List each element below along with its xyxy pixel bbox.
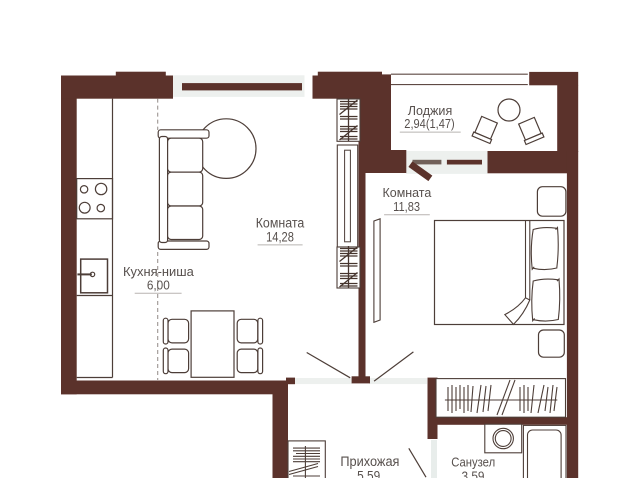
- svg-text:2,94(1,47): 2,94(1,47): [404, 116, 454, 131]
- svg-text:14,28: 14,28: [266, 229, 294, 244]
- svg-text:5,59: 5,59: [357, 469, 380, 478]
- svg-text:3,59: 3,59: [462, 469, 485, 478]
- svg-text:Комната: Комната: [383, 185, 433, 200]
- svg-text:Комната: Комната: [256, 215, 305, 230]
- svg-text:Прихожая: Прихожая: [340, 454, 399, 469]
- svg-text:11,83: 11,83: [393, 199, 420, 214]
- svg-text:Санузел: Санузел: [451, 454, 495, 469]
- svg-text:6,00: 6,00: [147, 277, 170, 292]
